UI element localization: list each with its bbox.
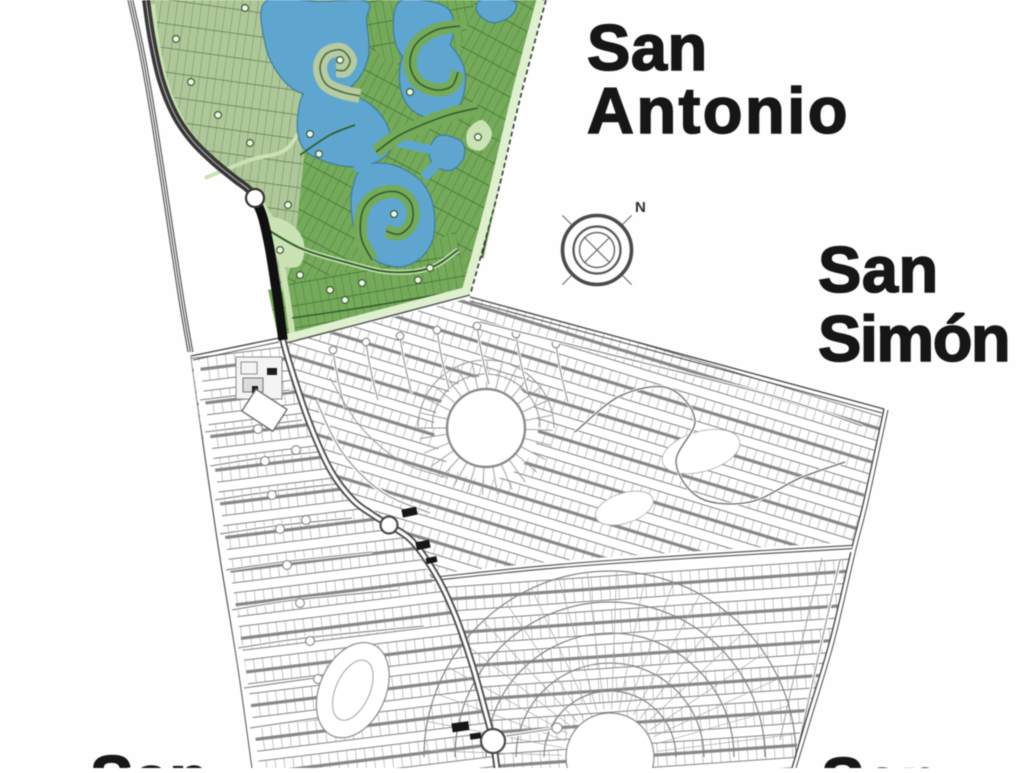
svg-text:Simón: Simón [818,302,1009,375]
svg-text:San: San [818,233,939,306]
svg-text:N: N [635,199,646,216]
svg-text:San: San [90,742,209,768]
svg-text:Antonio: Antonio [587,74,850,147]
svg-text:San: San [821,744,940,768]
